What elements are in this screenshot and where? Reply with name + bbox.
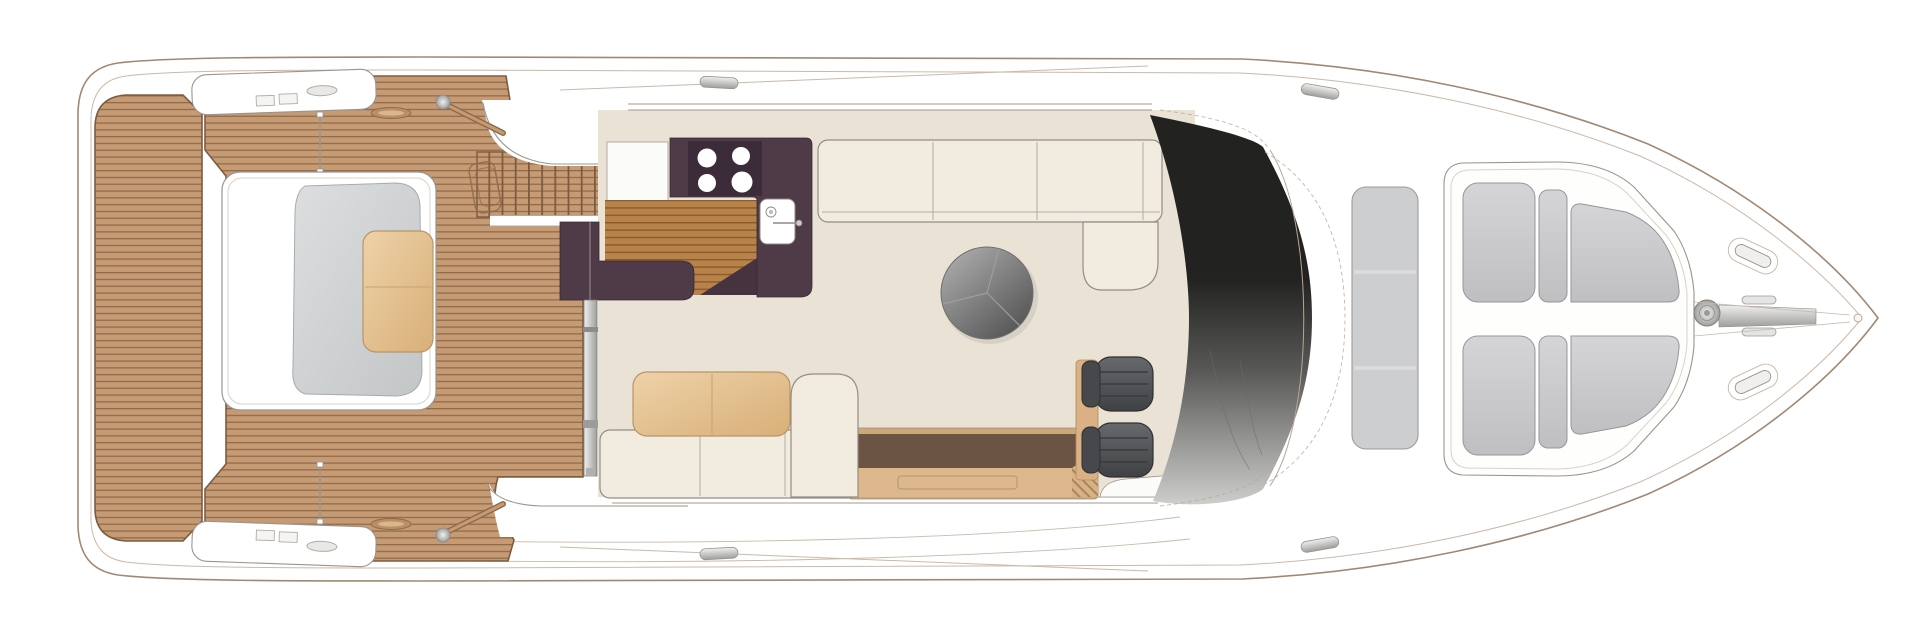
hob-panel xyxy=(688,141,762,196)
bow-cushion xyxy=(1539,336,1567,448)
swim-platform xyxy=(95,95,202,541)
aft-seating-unit xyxy=(222,172,436,410)
sink-drain-center xyxy=(769,210,773,214)
sunpad-cushion xyxy=(1352,187,1418,449)
helm-seat-backrest xyxy=(1082,361,1100,407)
aft-table xyxy=(363,231,433,352)
bow-cushion xyxy=(1539,190,1567,302)
sideboard-recess xyxy=(848,428,1098,499)
side-locker-bottom xyxy=(191,521,376,567)
teak-handle-bottom-inner xyxy=(378,521,404,526)
saloon-sofa-run xyxy=(818,140,1162,222)
hob xyxy=(688,141,762,196)
door-track xyxy=(584,300,597,476)
door-track-tick xyxy=(586,468,595,476)
hob-burner xyxy=(732,172,753,193)
bow-cushion xyxy=(1463,183,1535,302)
deck-vent xyxy=(1742,296,1776,304)
hob-burner xyxy=(698,149,717,168)
locker-latch xyxy=(279,94,297,105)
recess-shelf xyxy=(856,468,1085,497)
locker-body xyxy=(191,69,376,115)
windlass-drum-center xyxy=(1704,310,1710,316)
door-track-tick xyxy=(583,327,598,332)
foredeck-sunpad xyxy=(1352,187,1418,449)
locker-latch xyxy=(256,530,274,541)
recess-well xyxy=(856,434,1085,472)
deck-plan-canvas xyxy=(0,0,1920,637)
bow-cushion xyxy=(1463,336,1535,455)
saloon-sofa-chaise xyxy=(1083,222,1158,290)
teak-handle-top-inner xyxy=(378,110,404,115)
locker-body xyxy=(191,521,376,567)
hob-burner xyxy=(698,174,716,192)
helm-seat xyxy=(1082,423,1153,477)
deck-plan-page xyxy=(0,0,1920,637)
cockpit-sofa-chaise xyxy=(791,374,858,497)
sink-faucet-knob xyxy=(796,220,802,226)
cleat xyxy=(700,547,739,560)
galley-white-counter xyxy=(607,142,668,202)
cockpit-sofa xyxy=(600,372,858,498)
cleat xyxy=(700,76,739,89)
helm-seat xyxy=(1082,357,1153,411)
helm-seat-backrest xyxy=(1082,427,1100,473)
side-locker-top xyxy=(191,69,376,115)
locker-latch xyxy=(256,95,274,106)
hob-burner xyxy=(732,147,750,165)
locker-latch xyxy=(279,532,297,543)
bow-roller xyxy=(1854,314,1862,322)
door-track-tick xyxy=(583,420,598,428)
rail-post-top xyxy=(436,95,450,109)
rail-post-bottom xyxy=(436,528,450,542)
sink-basin xyxy=(760,199,795,244)
